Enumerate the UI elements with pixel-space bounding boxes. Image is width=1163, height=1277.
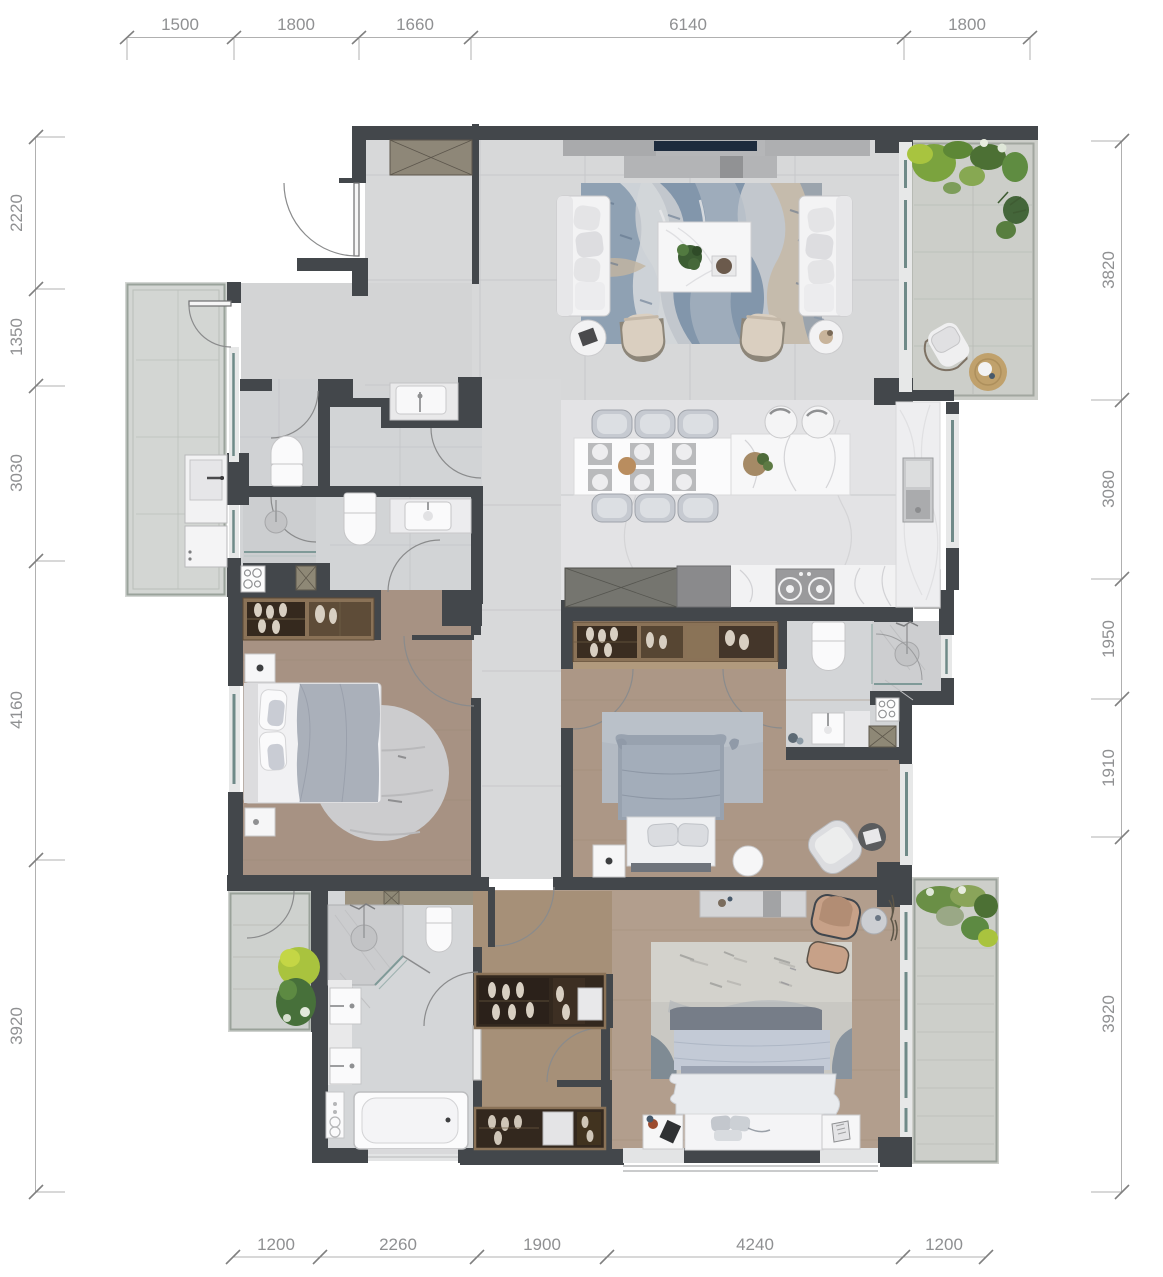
svg-text:1800: 1800 (948, 15, 986, 34)
svg-text:1950: 1950 (1099, 620, 1118, 658)
svg-text:3820: 3820 (1099, 251, 1118, 289)
svg-text:4160: 4160 (7, 691, 26, 729)
svg-text:4240: 4240 (736, 1235, 774, 1254)
svg-text:2260: 2260 (379, 1235, 417, 1254)
svg-text:1350: 1350 (7, 318, 26, 356)
svg-text:1500: 1500 (161, 15, 199, 34)
svg-text:6140: 6140 (669, 15, 707, 34)
svg-text:1200: 1200 (925, 1235, 963, 1254)
svg-text:1900: 1900 (523, 1235, 561, 1254)
svg-text:3030: 3030 (7, 454, 26, 492)
svg-text:1800: 1800 (277, 15, 315, 34)
svg-text:1200: 1200 (257, 1235, 295, 1254)
svg-text:3920: 3920 (1099, 995, 1118, 1033)
svg-text:1660: 1660 (396, 15, 434, 34)
svg-text:2220: 2220 (7, 194, 26, 232)
svg-text:3920: 3920 (7, 1007, 26, 1045)
svg-text:3080: 3080 (1099, 470, 1118, 508)
svg-text:1910: 1910 (1099, 749, 1118, 787)
